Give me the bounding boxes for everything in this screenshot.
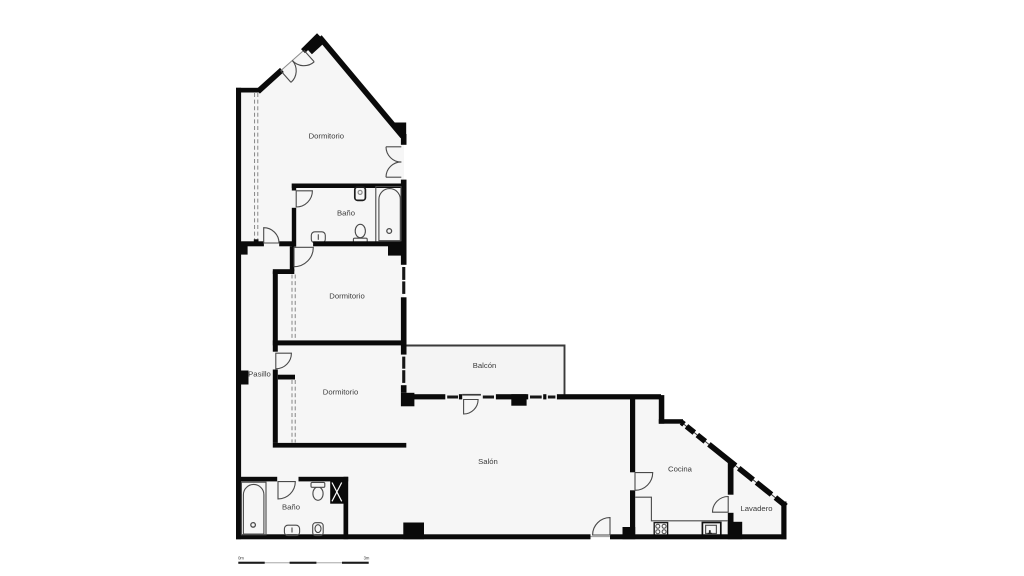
svg-text:Baño: Baño xyxy=(337,208,355,217)
svg-text:3m: 3m xyxy=(364,556,370,561)
svg-text:Dormitorio: Dormitorio xyxy=(323,387,358,396)
svg-text:0m: 0m xyxy=(238,556,244,561)
svg-text:Dormitorio: Dormitorio xyxy=(309,132,344,141)
svg-text:Salón: Salón xyxy=(478,457,498,466)
svg-text:Balcón: Balcón xyxy=(473,361,497,370)
svg-text:Baño: Baño xyxy=(282,503,300,512)
svg-text:Pasillo: Pasillo xyxy=(248,369,271,378)
svg-text:Dormitorio: Dormitorio xyxy=(329,291,364,300)
svg-text:Lavadero: Lavadero xyxy=(740,504,772,513)
svg-text:Cocina: Cocina xyxy=(668,465,693,474)
